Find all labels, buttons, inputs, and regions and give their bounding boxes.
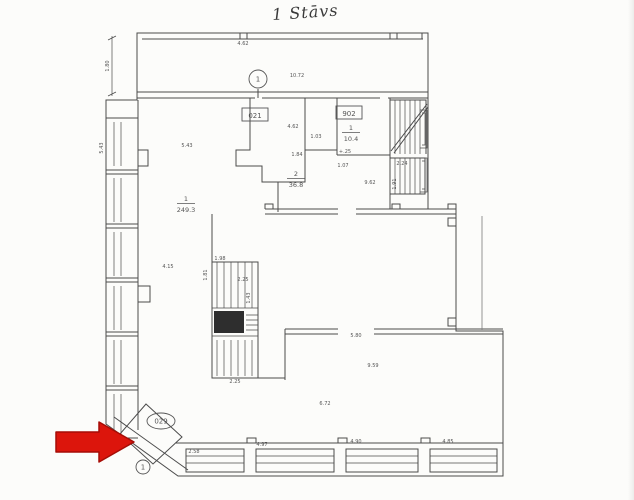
dim-label: 5.43 [99, 142, 105, 153]
dim-label: 2.58 [188, 449, 199, 455]
dim-label: 1.80 [105, 60, 111, 71]
dim-label: 1.43 [246, 292, 252, 303]
floor-plan-drawing: 10.724.621.805.434.621.031.845.431.072.2… [0, 0, 634, 500]
dim-label: 9.62 [364, 180, 375, 186]
scanned-floor-plan: 1 Stāvs [0, 0, 634, 500]
room-note: +.25 [339, 149, 351, 155]
dim-label: 6.72 [319, 401, 330, 407]
room-area: 249.3 [177, 206, 196, 214]
dim-label: 9.59 [367, 363, 378, 369]
dim-label: 4.85 [442, 439, 453, 445]
dim-label: 1.98 [214, 256, 225, 262]
dim-label: 10.72 [290, 73, 304, 79]
dim-label: 2.25 [237, 277, 248, 283]
room-id: 029 [154, 418, 167, 426]
dim-label: 1.81 [203, 269, 209, 280]
room-id: 902 [342, 110, 355, 118]
room-number: 2 [294, 170, 298, 178]
building-walls [106, 33, 503, 476]
dim-label: 5.80 [350, 333, 361, 339]
room-id: 021 [248, 112, 261, 120]
dim-label: 4.15 [162, 264, 173, 270]
dim-label: 4.90 [350, 439, 361, 445]
dim-label: 4.62 [237, 41, 248, 47]
scan-edge-shadow [628, 0, 634, 500]
dim-label: 1.07 [337, 163, 348, 169]
room-number: 1 [184, 195, 188, 203]
dim-label: 1.91 [392, 178, 398, 189]
dim-label: 2.24 [396, 161, 407, 167]
dim-label: 4.62 [287, 124, 298, 130]
dim-label: 2.25 [229, 379, 240, 385]
room-area: 36.8 [289, 181, 303, 189]
axis-marker: 1 [256, 76, 260, 84]
dim-label: 5.43 [181, 143, 192, 149]
elevator-shaft [214, 311, 244, 333]
room-area: 10.4 [344, 135, 358, 143]
dim-label: 1.03 [310, 134, 321, 140]
axis-marker: 1 [141, 464, 145, 472]
red-arrow-annotation [56, 422, 134, 462]
room-number: 1 [349, 124, 353, 132]
dim-label: 4.97 [256, 442, 267, 448]
dim-label: 1.84 [291, 152, 302, 158]
